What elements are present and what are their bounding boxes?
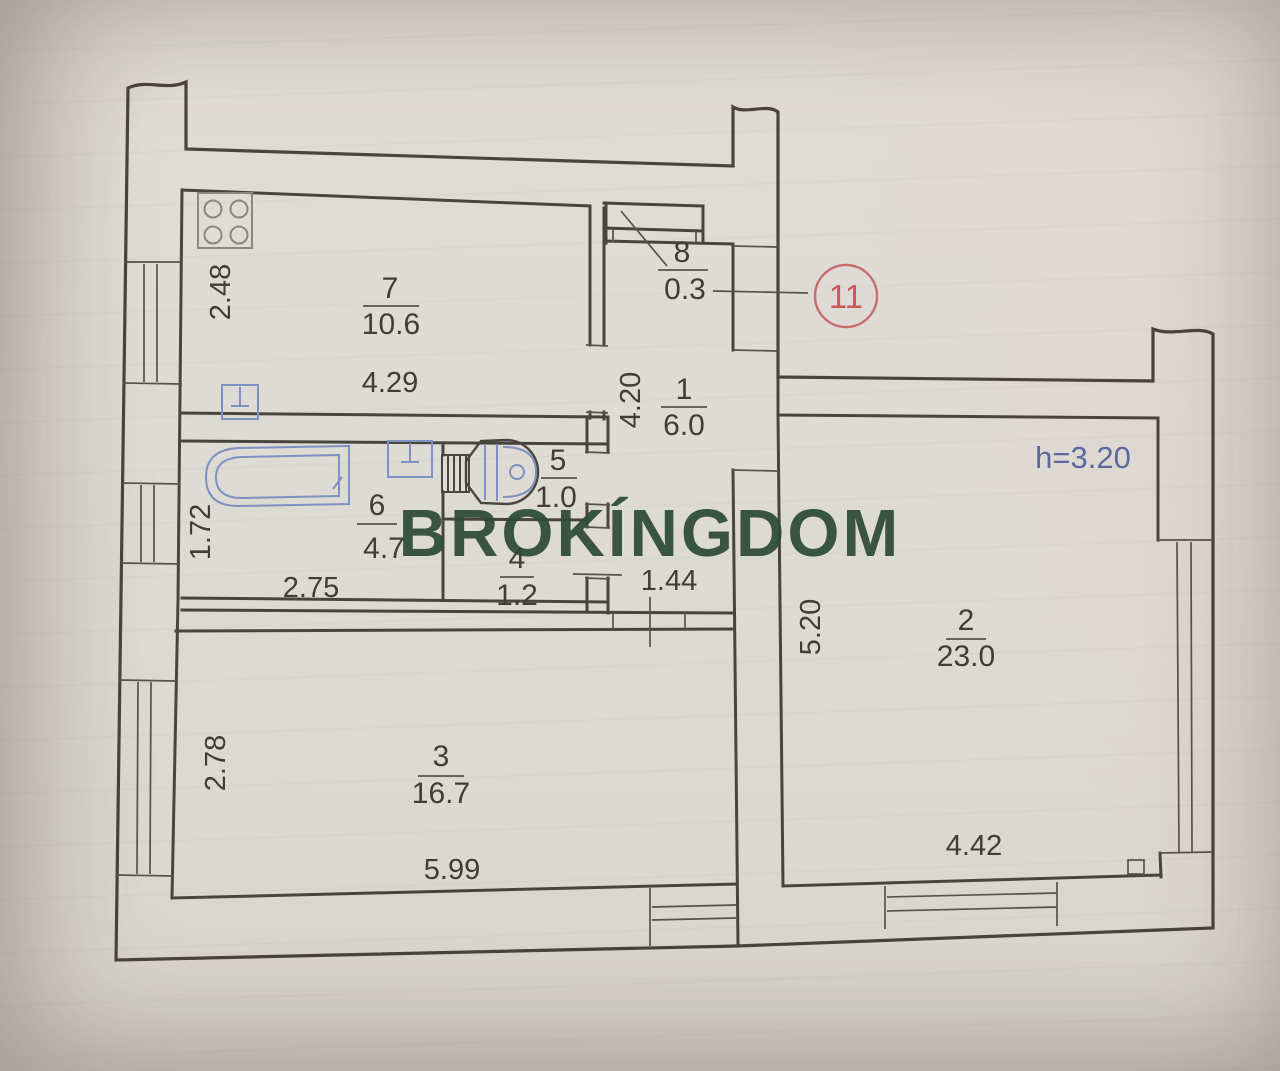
toilet-icon	[466, 440, 538, 504]
room-label-3: 3 16.7	[412, 740, 470, 810]
unit-number-badge: 11	[815, 265, 877, 327]
unit-number: 11	[829, 278, 863, 315]
dim-2-78: 2.78	[200, 735, 232, 791]
floor-plan-photo: 7 10.6 8 0.3 1 6.0 5 1.0 6 4.7 4 1.2	[0, 0, 1280, 1071]
leader-lines	[621, 211, 808, 293]
floor-plan-svg: 7 10.6 8 0.3 1 6.0 5 1.0 6 4.7 4 1.2	[0, 0, 1280, 1071]
room-area: 0.3	[664, 273, 706, 306]
dim-5-20: 5.20	[795, 599, 827, 655]
room-label-7: 7 10.6	[362, 272, 420, 341]
dim-2-75: 2.75	[283, 572, 339, 604]
wall-notch	[1128, 860, 1144, 874]
dim-2-48: 2.48	[205, 264, 237, 320]
room-number: 7	[382, 272, 399, 305]
room-area: 6.0	[663, 409, 705, 442]
room-label-2: 2 23.0	[937, 604, 995, 673]
bathtub-icon	[206, 446, 349, 506]
room-area: 10.6	[362, 308, 420, 341]
dim-4-42: 4.42	[946, 830, 1002, 862]
stove-icon	[198, 193, 252, 248]
room-number: 8	[674, 236, 691, 269]
room-area: 16.7	[412, 777, 470, 810]
room-number: 1	[676, 373, 693, 406]
room-area: 23.0	[937, 640, 995, 673]
window-symbols	[117, 262, 1213, 946]
dim-4-20: 4.20	[615, 372, 647, 428]
bath-sink-icon	[388, 441, 432, 477]
dim-5-99: 5.99	[424, 854, 480, 886]
room-number: 5	[550, 444, 567, 477]
room-label-1: 1 6.0	[661, 373, 707, 442]
room-number: 2	[958, 604, 975, 637]
room-label-8: 8 0.3	[658, 236, 708, 306]
room-number: 3	[433, 740, 450, 773]
room-number: 6	[369, 489, 386, 522]
ceiling-height-note: h=3.20	[1035, 440, 1131, 475]
room-area: 1.2	[496, 579, 538, 612]
dim-1-72: 1.72	[185, 504, 217, 560]
watermark-text: BROKÍNGDOM	[399, 496, 902, 571]
dim-4-29: 4.29	[362, 367, 418, 399]
